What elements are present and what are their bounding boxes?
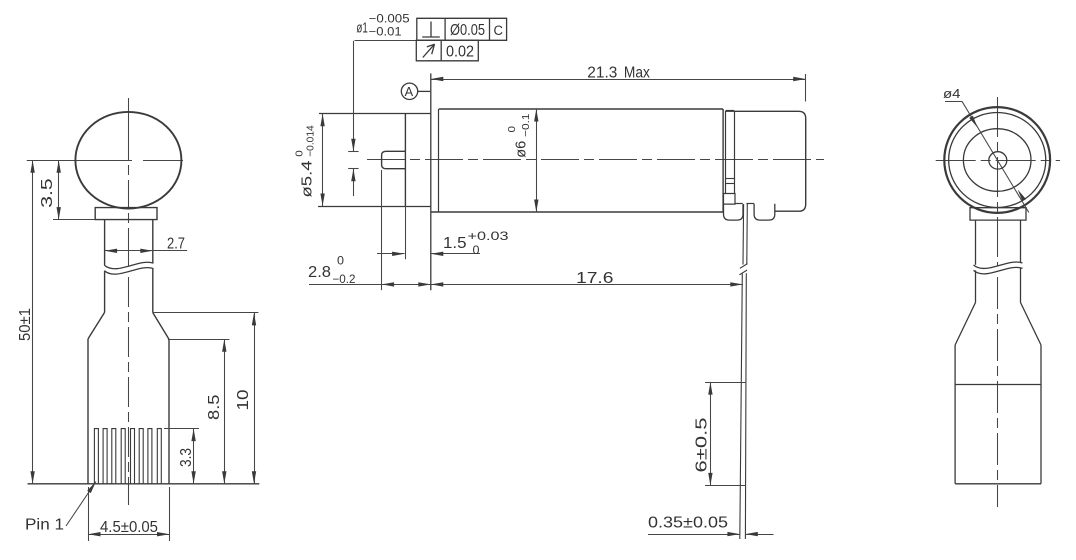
svg-text:0: 0 [506, 126, 518, 133]
svg-text:C: C [494, 23, 504, 38]
svg-text:Pin 1: Pin 1 [25, 517, 64, 534]
svg-text:A: A [405, 85, 414, 99]
svg-text:ø1: ø1 [356, 20, 368, 37]
svg-text:Max: Max [624, 65, 650, 82]
svg-text:50±1: 50±1 [17, 308, 34, 341]
svg-text:17.6: 17.6 [576, 270, 614, 287]
svg-text:2.8: 2.8 [308, 264, 331, 281]
svg-text:0.35±0.05: 0.35±0.05 [648, 515, 728, 532]
svg-text:ø6: ø6 [513, 141, 530, 158]
svg-text:0: 0 [473, 245, 480, 257]
svg-text:+0.03: +0.03 [468, 231, 509, 243]
svg-text:0.02: 0.02 [446, 44, 474, 61]
svg-text:3.3: 3.3 [178, 448, 195, 467]
svg-text:−0.2: −0.2 [333, 274, 356, 286]
svg-text:−0.014: −0.014 [304, 125, 316, 157]
svg-text:−0.1: −0.1 [520, 113, 532, 137]
svg-text:−0.01: −0.01 [369, 27, 402, 39]
svg-text:ø4: ø4 [943, 86, 961, 101]
svg-text:ø5.4: ø5.4 [299, 161, 316, 198]
svg-text:21.3: 21.3 [587, 65, 617, 82]
svg-text:4.5±0.05: 4.5±0.05 [100, 519, 158, 536]
svg-text:0: 0 [337, 256, 344, 268]
svg-text:6±0.5: 6±0.5 [694, 418, 711, 473]
svg-text:10: 10 [235, 389, 252, 410]
svg-text:1.5: 1.5 [443, 235, 467, 252]
svg-text:3.5: 3.5 [39, 178, 56, 208]
svg-text:−0.005: −0.005 [369, 13, 410, 25]
svg-text:8.5: 8.5 [206, 395, 223, 421]
svg-text:2.7: 2.7 [167, 236, 185, 253]
svg-text:Ø0.05: Ø0.05 [450, 22, 485, 39]
